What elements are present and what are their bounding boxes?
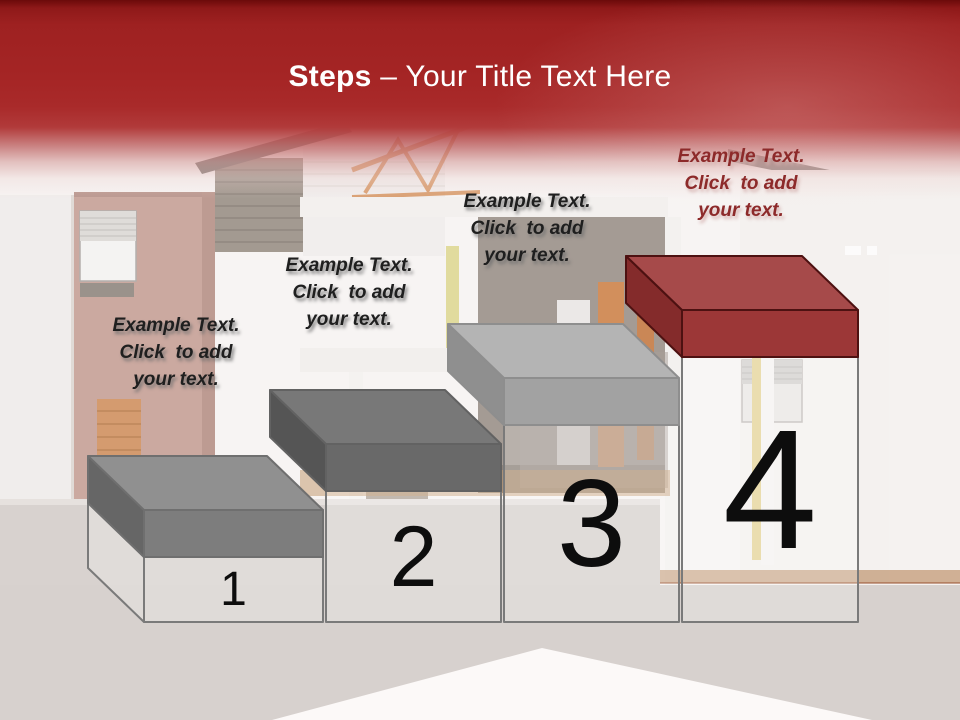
- step-3-number: 3: [504, 425, 679, 623]
- step-4-slab: [626, 256, 858, 357]
- label-line: Click to add: [446, 215, 608, 242]
- label-line: Click to add: [658, 170, 824, 197]
- step-2-text-placeholder[interactable]: Example Text. Click to add your text.: [268, 252, 430, 333]
- step-4-number: 4: [682, 357, 858, 623]
- slide: Steps – Your Title Text Here: [0, 0, 960, 720]
- label-line: Example Text.: [268, 252, 430, 279]
- label-line: Example Text.: [95, 312, 257, 339]
- label-line: Example Text.: [446, 188, 608, 215]
- step-3-slab-front: [504, 378, 679, 425]
- step-2-slab: [270, 390, 501, 491]
- step-4-slab-front: [682, 310, 858, 357]
- step-4-text-placeholder[interactable]: Example Text. Click to add your text.: [658, 143, 824, 224]
- step-2-number: 2: [326, 491, 501, 623]
- label-line: your text.: [268, 306, 430, 333]
- step-1-number: 1: [144, 557, 323, 623]
- label-line: your text.: [658, 197, 824, 224]
- step-2-slab-front: [326, 444, 501, 491]
- step-1-text-placeholder[interactable]: Example Text. Click to add your text.: [95, 312, 257, 393]
- step-1-slab-front: [144, 510, 323, 557]
- label-line: Example Text.: [658, 143, 824, 170]
- label-line: Click to add: [95, 339, 257, 366]
- label-line: your text.: [446, 242, 608, 269]
- label-line: your text.: [95, 366, 257, 393]
- label-line: Click to add: [268, 279, 430, 306]
- step-3-slab: [448, 324, 679, 425]
- step-3-text-placeholder[interactable]: Example Text. Click to add your text.: [446, 188, 608, 269]
